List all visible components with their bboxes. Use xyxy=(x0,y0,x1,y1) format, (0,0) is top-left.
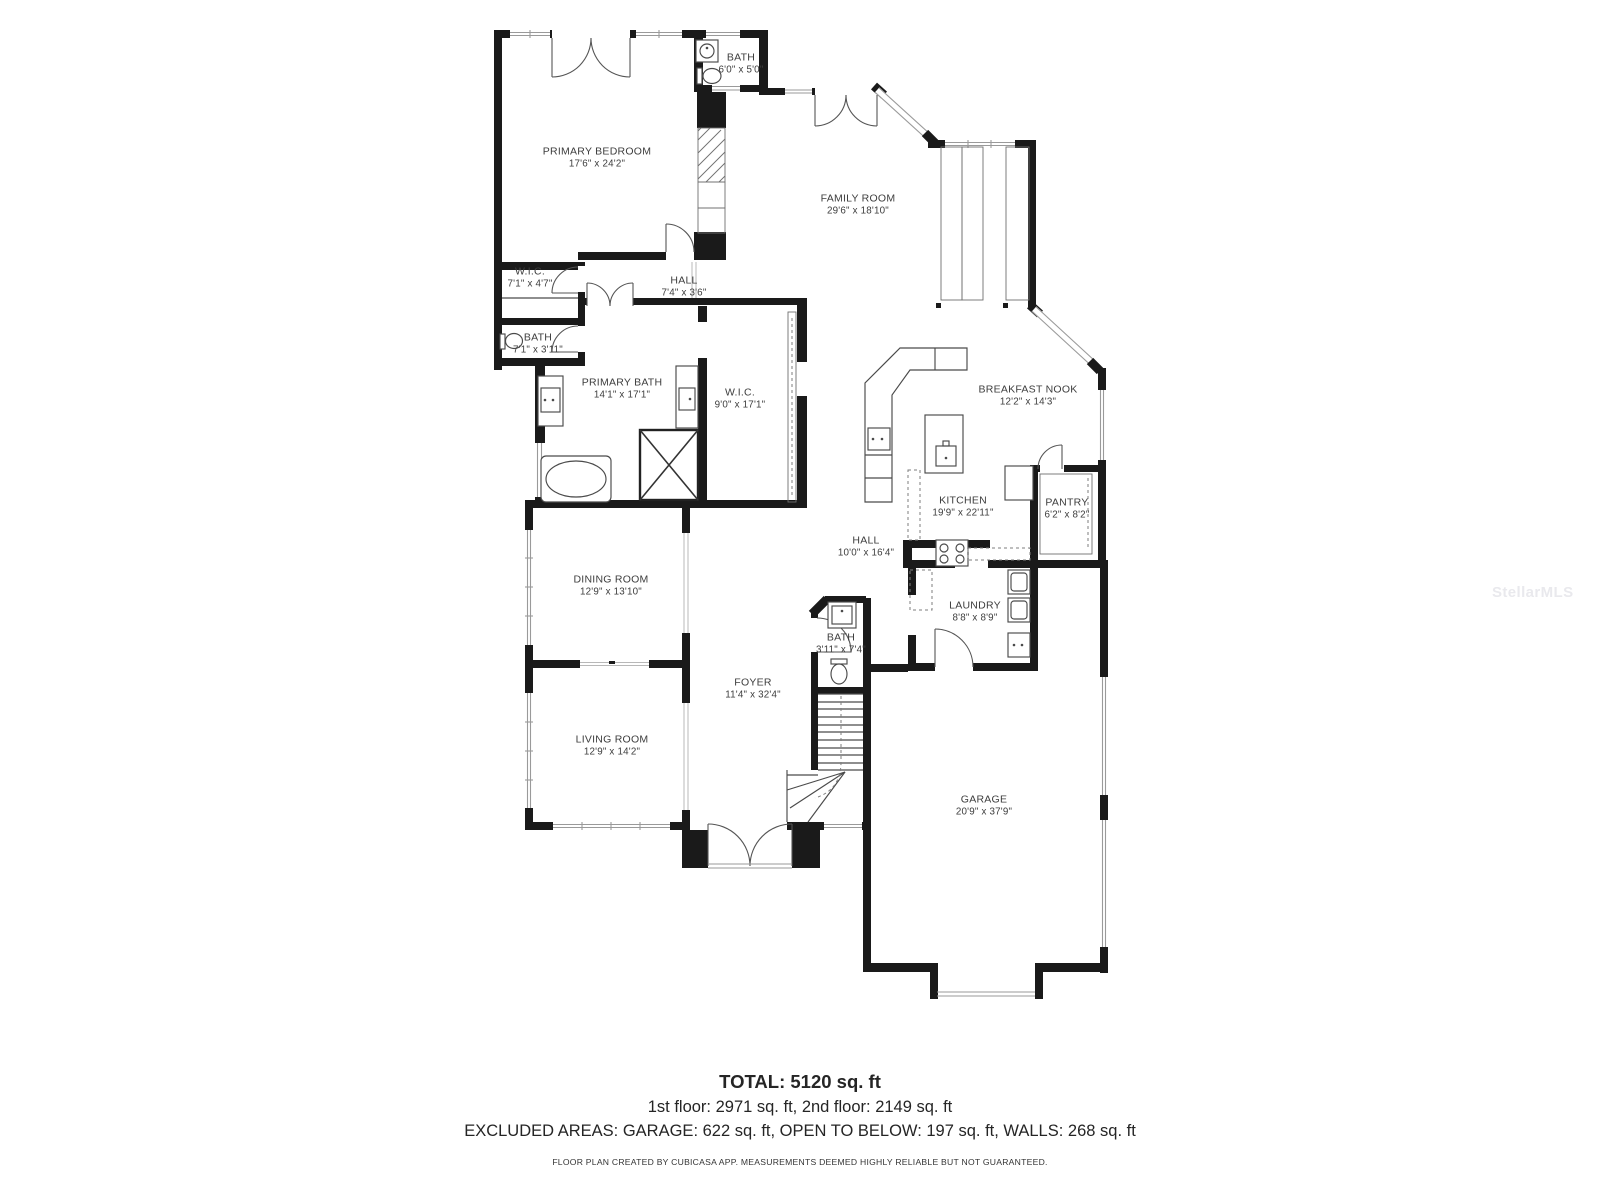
summary-footer: TOTAL: 5120 sq. ft 1st floor: 2971 sq. f… xyxy=(0,1071,1600,1167)
kitchen-fixtures xyxy=(865,348,1033,566)
pantry-fixtures xyxy=(1040,474,1092,554)
laundry-fixtures xyxy=(910,570,1030,657)
excluded-areas: EXCLUDED AREAS: GARAGE: 622 sq. ft, OPEN… xyxy=(0,1122,1600,1141)
walls xyxy=(494,30,1108,999)
family-room-panels xyxy=(941,147,1029,300)
staircase xyxy=(787,694,863,822)
bay-window-nook xyxy=(1030,305,1100,371)
wic9-closet-rail xyxy=(788,312,796,502)
floor-plan-drawing xyxy=(0,0,1600,1200)
bath-top-fixtures xyxy=(696,40,721,84)
bay-window-family xyxy=(874,86,935,143)
primary-bath-fixtures xyxy=(538,366,698,502)
total-area: TOTAL: 5120 sq. ft xyxy=(0,1071,1600,1093)
watermark: StellarMLS xyxy=(1492,584,1600,601)
fireplace-chimney xyxy=(698,128,725,233)
disclaimer: FLOOR PLAN CREATED BY CUBICASA APP. MEAS… xyxy=(0,1157,1600,1167)
garage-door xyxy=(937,992,1035,996)
floor-areas: 1st floor: 2971 sq. ft, 2nd floor: 2149 … xyxy=(0,1098,1600,1117)
floor-plan-page: PRIMARY BEDROOM17'6" x 24'2"BATH6'0" x 5… xyxy=(0,0,1600,1200)
bath-small-fixtures xyxy=(500,334,523,350)
bath2-fixtures xyxy=(828,602,856,684)
